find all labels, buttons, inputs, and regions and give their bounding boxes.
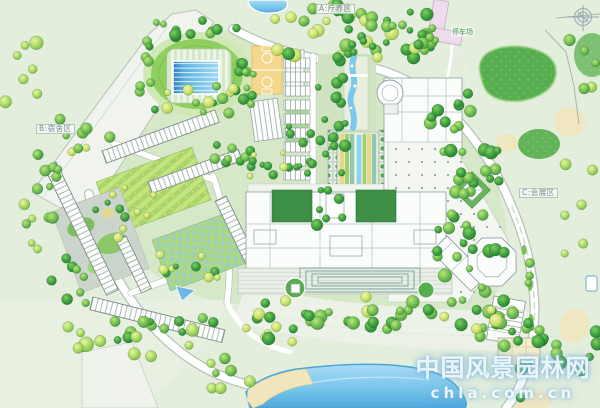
swimming-pool <box>173 61 219 94</box>
round-hall <box>377 80 403 106</box>
site-plan: B:宿舍区 A:疗养区 C:会展区 停车场 中国风景园林网 chla.com.c… <box>0 0 600 408</box>
map-marker <box>586 276 597 291</box>
zone-label-recuperation: A:疗养区 <box>316 4 355 14</box>
zone-label-exhibition: C:会展区 <box>519 188 558 198</box>
stream <box>351 57 355 128</box>
courtyard-garden <box>272 190 312 222</box>
parking-label: 停车场 <box>451 27 474 37</box>
site-plan-drawing <box>0 0 600 408</box>
courtyard-garden <box>356 190 396 222</box>
palace-building <box>238 190 452 298</box>
zone-label-dormitory: B:宿舍区 <box>36 124 75 134</box>
